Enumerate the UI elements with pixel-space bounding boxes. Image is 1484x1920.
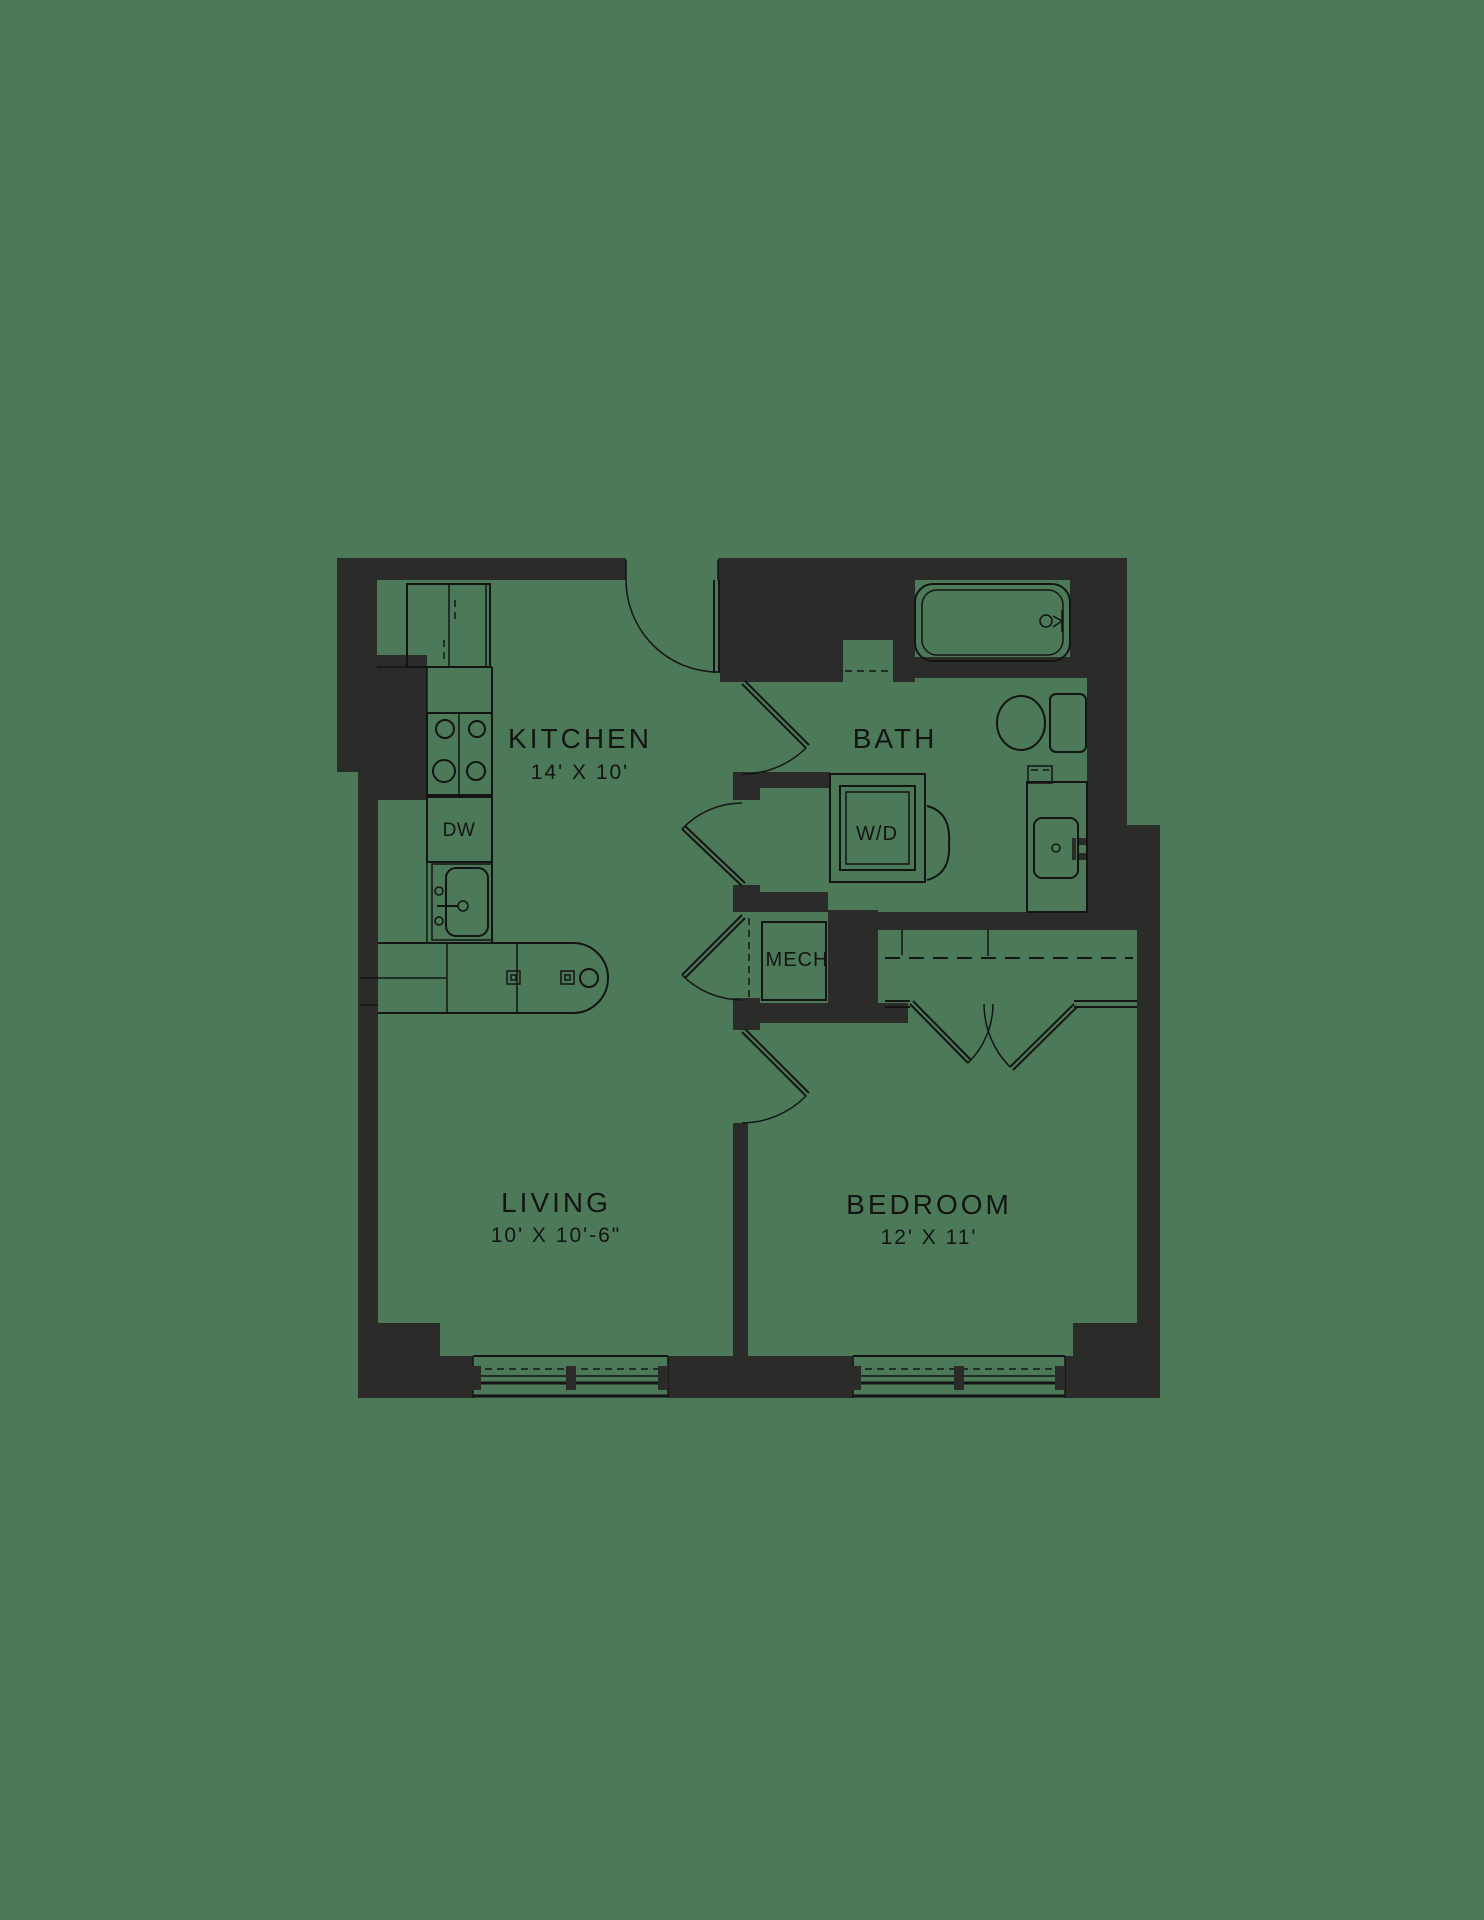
wall-bath-right bbox=[1087, 678, 1127, 825]
wall-left-lower bbox=[358, 772, 378, 1362]
sink-disposal-icon bbox=[580, 969, 598, 987]
wall-window-jamb-right bbox=[1065, 1356, 1073, 1398]
bath-label: BATH bbox=[853, 723, 938, 754]
wall-top-bath bbox=[718, 558, 1127, 580]
kitchen-dimensions: 14' X 10' bbox=[531, 761, 629, 784]
wall-closet-top bbox=[878, 912, 1160, 930]
bedroom-dimensions: 12' X 11' bbox=[881, 1226, 978, 1249]
outlet-icon bbox=[561, 971, 574, 984]
bedroom-window bbox=[851, 1356, 1065, 1398]
refrigerator-icon bbox=[407, 584, 490, 667]
range-icon bbox=[427, 713, 492, 795]
room-labels: KITCHEN 14' X 10' BATH W/D DW MECH LIVIN… bbox=[443, 723, 1012, 1249]
floorplan-page: KITCHEN 14' X 10' BATH W/D DW MECH LIVIN… bbox=[0, 0, 1484, 1920]
wall-right-bump bbox=[1087, 825, 1160, 912]
hall-door-upper-swing bbox=[682, 803, 745, 886]
wall-corner-bottom-left bbox=[358, 1323, 440, 1398]
toilet-icon bbox=[997, 694, 1086, 752]
wall-left-upper bbox=[337, 558, 377, 772]
bedroom-label: BEDROOM bbox=[846, 1189, 1012, 1220]
towel-bar-icon bbox=[1028, 766, 1052, 783]
bath-door-swing bbox=[742, 681, 809, 774]
living-dimensions: 10' X 10'-6" bbox=[491, 1224, 622, 1247]
wall-top-kitchen bbox=[337, 558, 626, 580]
bedroom-door-swing bbox=[742, 1029, 809, 1123]
living-window bbox=[471, 1356, 668, 1398]
wall-niche-top bbox=[843, 580, 893, 640]
wall-tub-right bbox=[1070, 580, 1127, 678]
mech-door-swing bbox=[682, 915, 745, 1000]
wall-bath-west-mass bbox=[720, 580, 843, 682]
island-counter bbox=[360, 943, 608, 1013]
kitchen-sink-icon bbox=[432, 864, 492, 940]
dishwasher-label: DW bbox=[443, 820, 476, 841]
doors bbox=[626, 560, 1077, 1123]
vanity-sink-icon bbox=[1027, 766, 1087, 912]
washer-dryer-label: W/D bbox=[856, 823, 898, 845]
wall-mech-top bbox=[748, 892, 828, 912]
bathtub-icon bbox=[915, 584, 1070, 661]
wall-mech-right bbox=[828, 910, 878, 1003]
wall-corner-bottom-right bbox=[1073, 1323, 1160, 1398]
wall-range-back bbox=[377, 655, 427, 800]
wall-mech-bottom bbox=[748, 1003, 908, 1023]
wall-bedroom-right bbox=[1137, 930, 1160, 1323]
closet-door-arc bbox=[927, 806, 949, 880]
outlet-icon bbox=[507, 971, 520, 984]
bedroom-closet bbox=[885, 930, 1137, 1007]
closet-double-door-swing bbox=[910, 1001, 1077, 1070]
entry-door-swing bbox=[626, 560, 719, 673]
wall-window-jamb-left bbox=[440, 1356, 473, 1398]
wall-footing-middle bbox=[668, 1356, 853, 1398]
living-label: LIVING bbox=[501, 1187, 611, 1218]
kitchen-label: KITCHEN bbox=[508, 723, 652, 754]
wall-wd-top bbox=[748, 772, 830, 788]
wall-living-bedroom-divider bbox=[733, 1123, 748, 1362]
floorplan-canvas: KITCHEN 14' X 10' BATH W/D DW MECH LIVIN… bbox=[0, 0, 1484, 1920]
mech-label: MECH bbox=[766, 949, 829, 971]
